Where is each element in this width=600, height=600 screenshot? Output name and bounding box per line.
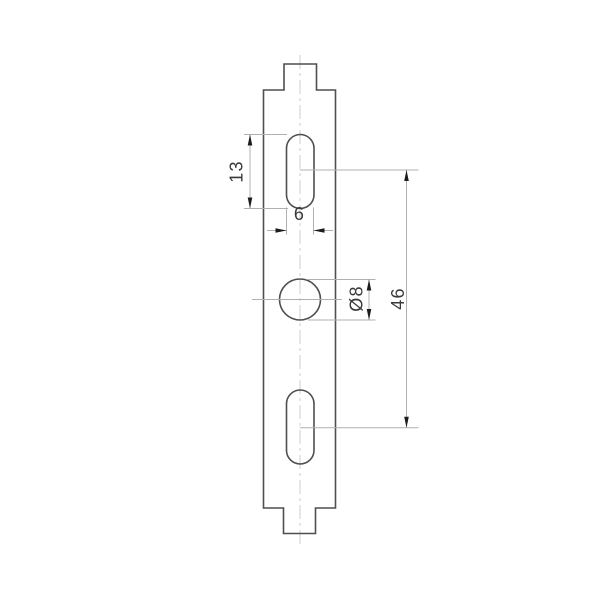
top-slot xyxy=(287,135,315,209)
arrow-down-icon xyxy=(248,198,253,209)
arrow-up-icon xyxy=(248,135,253,146)
slot-width-label: 6 xyxy=(294,204,305,224)
bottom-slot xyxy=(287,390,315,464)
arrow-up-icon xyxy=(404,170,409,181)
drawing-svg: 13 6 Ø8 46 xyxy=(0,0,600,600)
hole-diameter-label: Ø8 xyxy=(347,285,367,311)
technical-drawing-canvas: 13 6 Ø8 46 xyxy=(0,0,600,600)
arrow-right-icon xyxy=(276,228,287,233)
arrow-up-icon xyxy=(367,280,372,291)
dimension-hole-spacing: 46 xyxy=(388,170,409,428)
hole-spacing-label: 46 xyxy=(388,287,408,309)
arrow-down-icon xyxy=(367,309,372,320)
arrow-left-icon xyxy=(314,228,325,233)
slot-height-label: 13 xyxy=(227,160,247,182)
arrow-down-icon xyxy=(404,417,409,428)
dimension-slot-height: 13 xyxy=(227,135,289,209)
